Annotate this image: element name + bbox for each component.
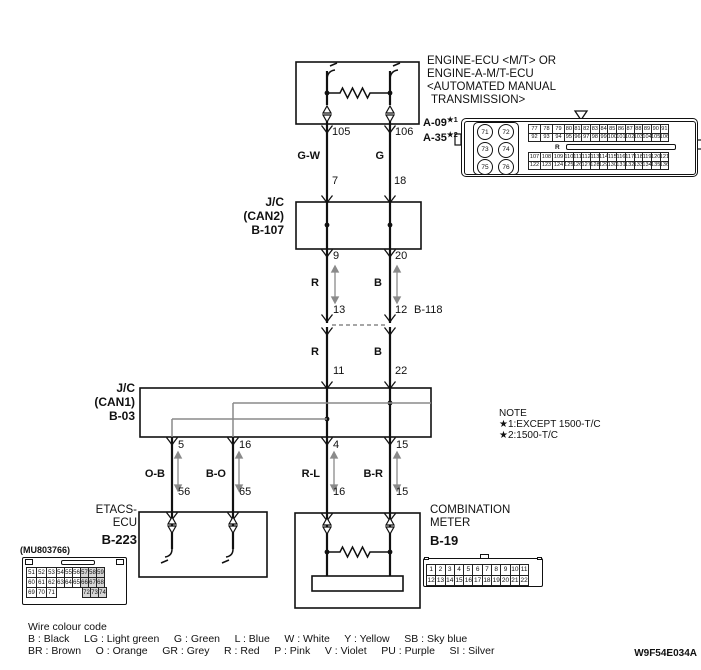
wiring-diagram-page: ENGINE-ECU <M/T> OR ENGINE-A-M/T-ECU <AU… (0, 0, 701, 670)
etacs-connector-lock-left (25, 559, 33, 565)
pin-12: 12 (395, 305, 407, 316)
wire-label-g: G (334, 151, 384, 162)
connector-pin-cell: 22 (519, 575, 529, 587)
pin-15-meter: 15 (396, 487, 408, 498)
connector-pin-cell (56, 587, 83, 598)
pin-4: 4 (333, 440, 339, 451)
engine-hook-left (327, 63, 337, 80)
pin-105: 105 (332, 127, 350, 138)
note-item-1: ★1:EXCEPT 1500-T/C (499, 419, 601, 430)
wire-colour-code-line2: BR : Brown O : Orange GR : Grey R : Red … (28, 646, 494, 657)
note-item-2: ★2:1500-T/C (499, 430, 558, 441)
jc-can2-label-line2: (CAN2) (204, 211, 284, 222)
connector-ref-a35: A-35★2 (423, 129, 458, 144)
engine-resistor (327, 88, 390, 98)
pin-11: 11 (333, 366, 344, 377)
connector-pin-cell: 71 (477, 124, 493, 140)
component-boxes (139, 62, 431, 608)
connector-ref-a09: A-09★1 (423, 114, 458, 129)
pin-20: 20 (395, 251, 407, 262)
etacs-hook-right (222, 549, 233, 563)
etacs-part-number: (MU803766) (20, 545, 70, 556)
meter-connector-lock-left (424, 557, 429, 560)
pin-56: 56 (178, 487, 190, 498)
pin-22: 22 (395, 366, 407, 377)
meter-connector-pinout: 1234567891011 1213141516171819202122 (423, 558, 543, 587)
jc-can1-box (140, 388, 431, 437)
engine-ecu-box (296, 62, 419, 124)
etacs-connector-ref: B-223 (57, 534, 137, 545)
jc-can1-bus (172, 403, 431, 437)
jc-can2-label-line3: B-107 (204, 225, 284, 236)
engine-ecu-title-line3: <AUTOMATED MANUAL (427, 82, 556, 93)
engine-pin-row-4: 1221231241251261271281291301311321331341… (529, 161, 669, 171)
jc-can1-label-line2: (CAN1) (55, 397, 135, 408)
pin-13: 13 (333, 305, 345, 316)
pin-15: 15 (396, 440, 408, 451)
jc-can1-label-line3: B-03 (55, 411, 135, 422)
engine-connector-pinout: 717273747576 777879808182838485868788899… (461, 118, 698, 177)
wire-label-rl: R-L (270, 469, 320, 480)
meter-connector-tab (480, 554, 489, 559)
wire-label-b1: B (332, 278, 382, 289)
connector-ref-b118: B-118 (414, 305, 443, 316)
direction-arrows (175, 266, 400, 491)
pin-9: 9 (333, 251, 339, 262)
etacs-connector-lock-right (116, 559, 124, 565)
connector-pin-cell: 73 (477, 142, 493, 158)
pin-106: 106 (395, 127, 413, 138)
jc-can1-label-line1: J/C (55, 383, 135, 394)
wire-label-bo: B-O (176, 469, 226, 480)
pin-65: 65 (239, 487, 251, 498)
engine-ecu-title-line4: TRANSMISSION> (431, 95, 525, 106)
meter-resistor (327, 547, 390, 557)
connector-ref-a09-text: A-09 (423, 117, 447, 129)
pin-7: 7 (332, 176, 338, 187)
etacs-ecu-box (139, 512, 267, 577)
combination-meter-box (295, 513, 420, 608)
wire-label-b2: B (332, 347, 382, 358)
engine-connector-key-slot (566, 144, 676, 150)
pin-5: 5 (178, 440, 184, 451)
etacs-label-line2: ECU (57, 518, 137, 529)
wire-colour-code-line1: B : Black LG : Light green G : Green L :… (28, 634, 467, 645)
connector-pin-cell: 136 (660, 161, 670, 171)
etacs-connector-pinout: 515253545556575859 606162636465666768 69… (22, 557, 127, 605)
wire-label-br: B-R (333, 469, 383, 480)
wires (161, 63, 400, 576)
engine-hook-right (390, 63, 400, 80)
wire-colour-code-title: Wire colour code (28, 622, 107, 633)
pin-16: 16 (239, 440, 251, 451)
connector-ref-a35-text: A-35 (423, 132, 447, 144)
etacs-label-line1: ETACS- (57, 505, 137, 516)
meter-connector-ref: B-19 (430, 535, 458, 546)
etacs-connector-key-slot (61, 560, 95, 565)
footnote-marker-1: ★1 (447, 115, 458, 124)
wire-label-r1: R (269, 278, 319, 289)
wire-label-r2: R (269, 347, 319, 358)
wire-label-gw: G-W (270, 151, 320, 162)
meter-label-line1: COMBINATION (430, 505, 510, 516)
meter-pin-row-2: 1213141516171819202122 (427, 575, 529, 587)
connector-pin-cell: 74 (498, 142, 514, 158)
wire-label-ob: O-B (115, 469, 165, 480)
meter-connector-lock-right (537, 557, 542, 560)
connector-pin-cell: 72 (498, 124, 514, 140)
meter-internal-bar (312, 576, 403, 591)
meter-label-line2: METER (430, 518, 470, 529)
jc-can2-box (296, 202, 421, 249)
engine-connector-round-pins: 717273747576 (473, 122, 519, 175)
connector-pin-cell: 74 (98, 587, 107, 598)
connector-pin-cell: 75 (477, 159, 493, 175)
connector-pin-cell: 106 (660, 133, 670, 143)
footnote-marker-2: ★2 (447, 130, 458, 139)
engine-ecu-title-line1: ENGINE-ECU <M/T> OR (427, 56, 556, 67)
pin-16-meter: 16 (333, 487, 345, 498)
note-title: NOTE (499, 408, 527, 419)
connector-pin-cell: 76 (498, 159, 514, 175)
engine-ecu-title-line2: ENGINE-A-M/T-ECU (427, 69, 534, 80)
engine-pin-row-2: 9293949596979899100101102103104105106 (529, 133, 669, 143)
document-code: W9F54E034A (617, 648, 697, 659)
etacs-hook-left (161, 549, 172, 563)
terminal-chevrons (167, 126, 396, 522)
etacs-pin-row-3: 697071727374 (27, 587, 107, 598)
jc-can2-label-line1: J/C (204, 197, 284, 208)
pin-18: 18 (394, 176, 406, 187)
